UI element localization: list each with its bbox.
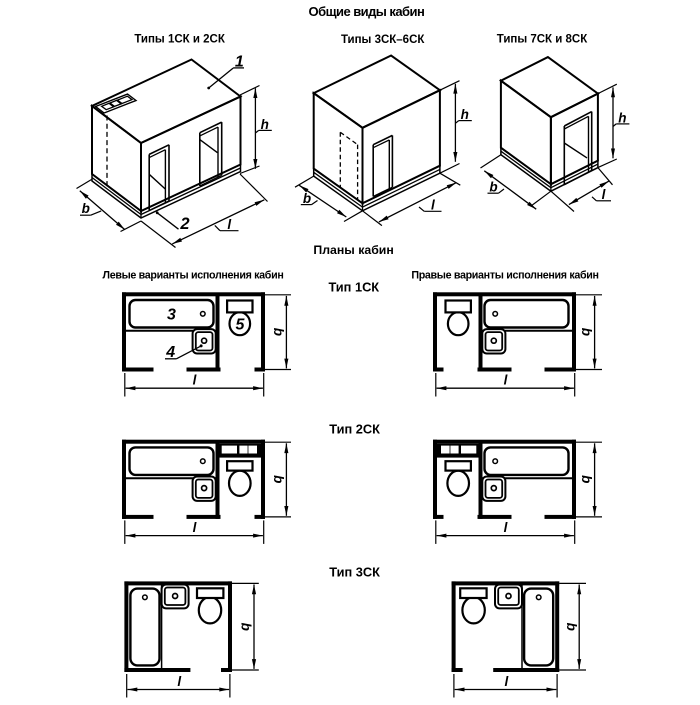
- svg-text:b: b: [579, 475, 594, 483]
- svg-text:Общие виды кабин: Общие виды кабин: [309, 4, 425, 19]
- svg-text:Тип 2СК: Тип 2СК: [329, 422, 380, 437]
- svg-text:b: b: [271, 475, 286, 483]
- svg-text:1: 1: [235, 54, 244, 71]
- svg-text:l: l: [227, 217, 231, 232]
- svg-text:b: b: [564, 623, 579, 631]
- svg-text:l: l: [602, 187, 606, 202]
- svg-text:Планы кабин: Планы кабин: [313, 243, 393, 257]
- svg-text:h: h: [461, 107, 469, 122]
- svg-text:Типы 7СК и 8СК: Типы 7СК и 8СК: [497, 34, 588, 46]
- svg-text:Тип 3СК: Тип 3СК: [329, 565, 380, 580]
- svg-text:b: b: [489, 180, 497, 195]
- svg-text:3: 3: [167, 307, 176, 324]
- svg-text:l: l: [177, 674, 181, 689]
- svg-text:Левые варианты исполнения каби: Левые варианты исполнения кабин: [103, 269, 284, 281]
- svg-text:Типы 3СК–6СК: Типы 3СК–6СК: [341, 34, 425, 46]
- svg-text:l: l: [193, 520, 197, 535]
- svg-text:l: l: [504, 373, 508, 388]
- svg-text:b: b: [579, 328, 594, 336]
- svg-text:2: 2: [179, 215, 189, 233]
- svg-text:l: l: [504, 520, 508, 535]
- svg-text:5: 5: [235, 316, 245, 333]
- svg-text:l: l: [193, 373, 197, 388]
- svg-text:b: b: [239, 623, 254, 631]
- svg-text:b: b: [82, 201, 90, 216]
- svg-text:h: h: [618, 110, 626, 125]
- svg-text:Правые варианты исполнения каб: Правые варианты исполнения кабин: [411, 269, 598, 281]
- svg-text:b: b: [303, 191, 311, 206]
- svg-text:4: 4: [165, 344, 175, 361]
- svg-text:l: l: [505, 674, 509, 689]
- svg-text:Тип 1СК: Тип 1СК: [328, 279, 379, 294]
- svg-text:Типы 1СК и 2СК: Типы 1СК и 2СК: [134, 33, 225, 45]
- svg-text:h: h: [261, 117, 269, 132]
- svg-text:b: b: [271, 328, 286, 336]
- svg-text:l: l: [431, 198, 435, 213]
